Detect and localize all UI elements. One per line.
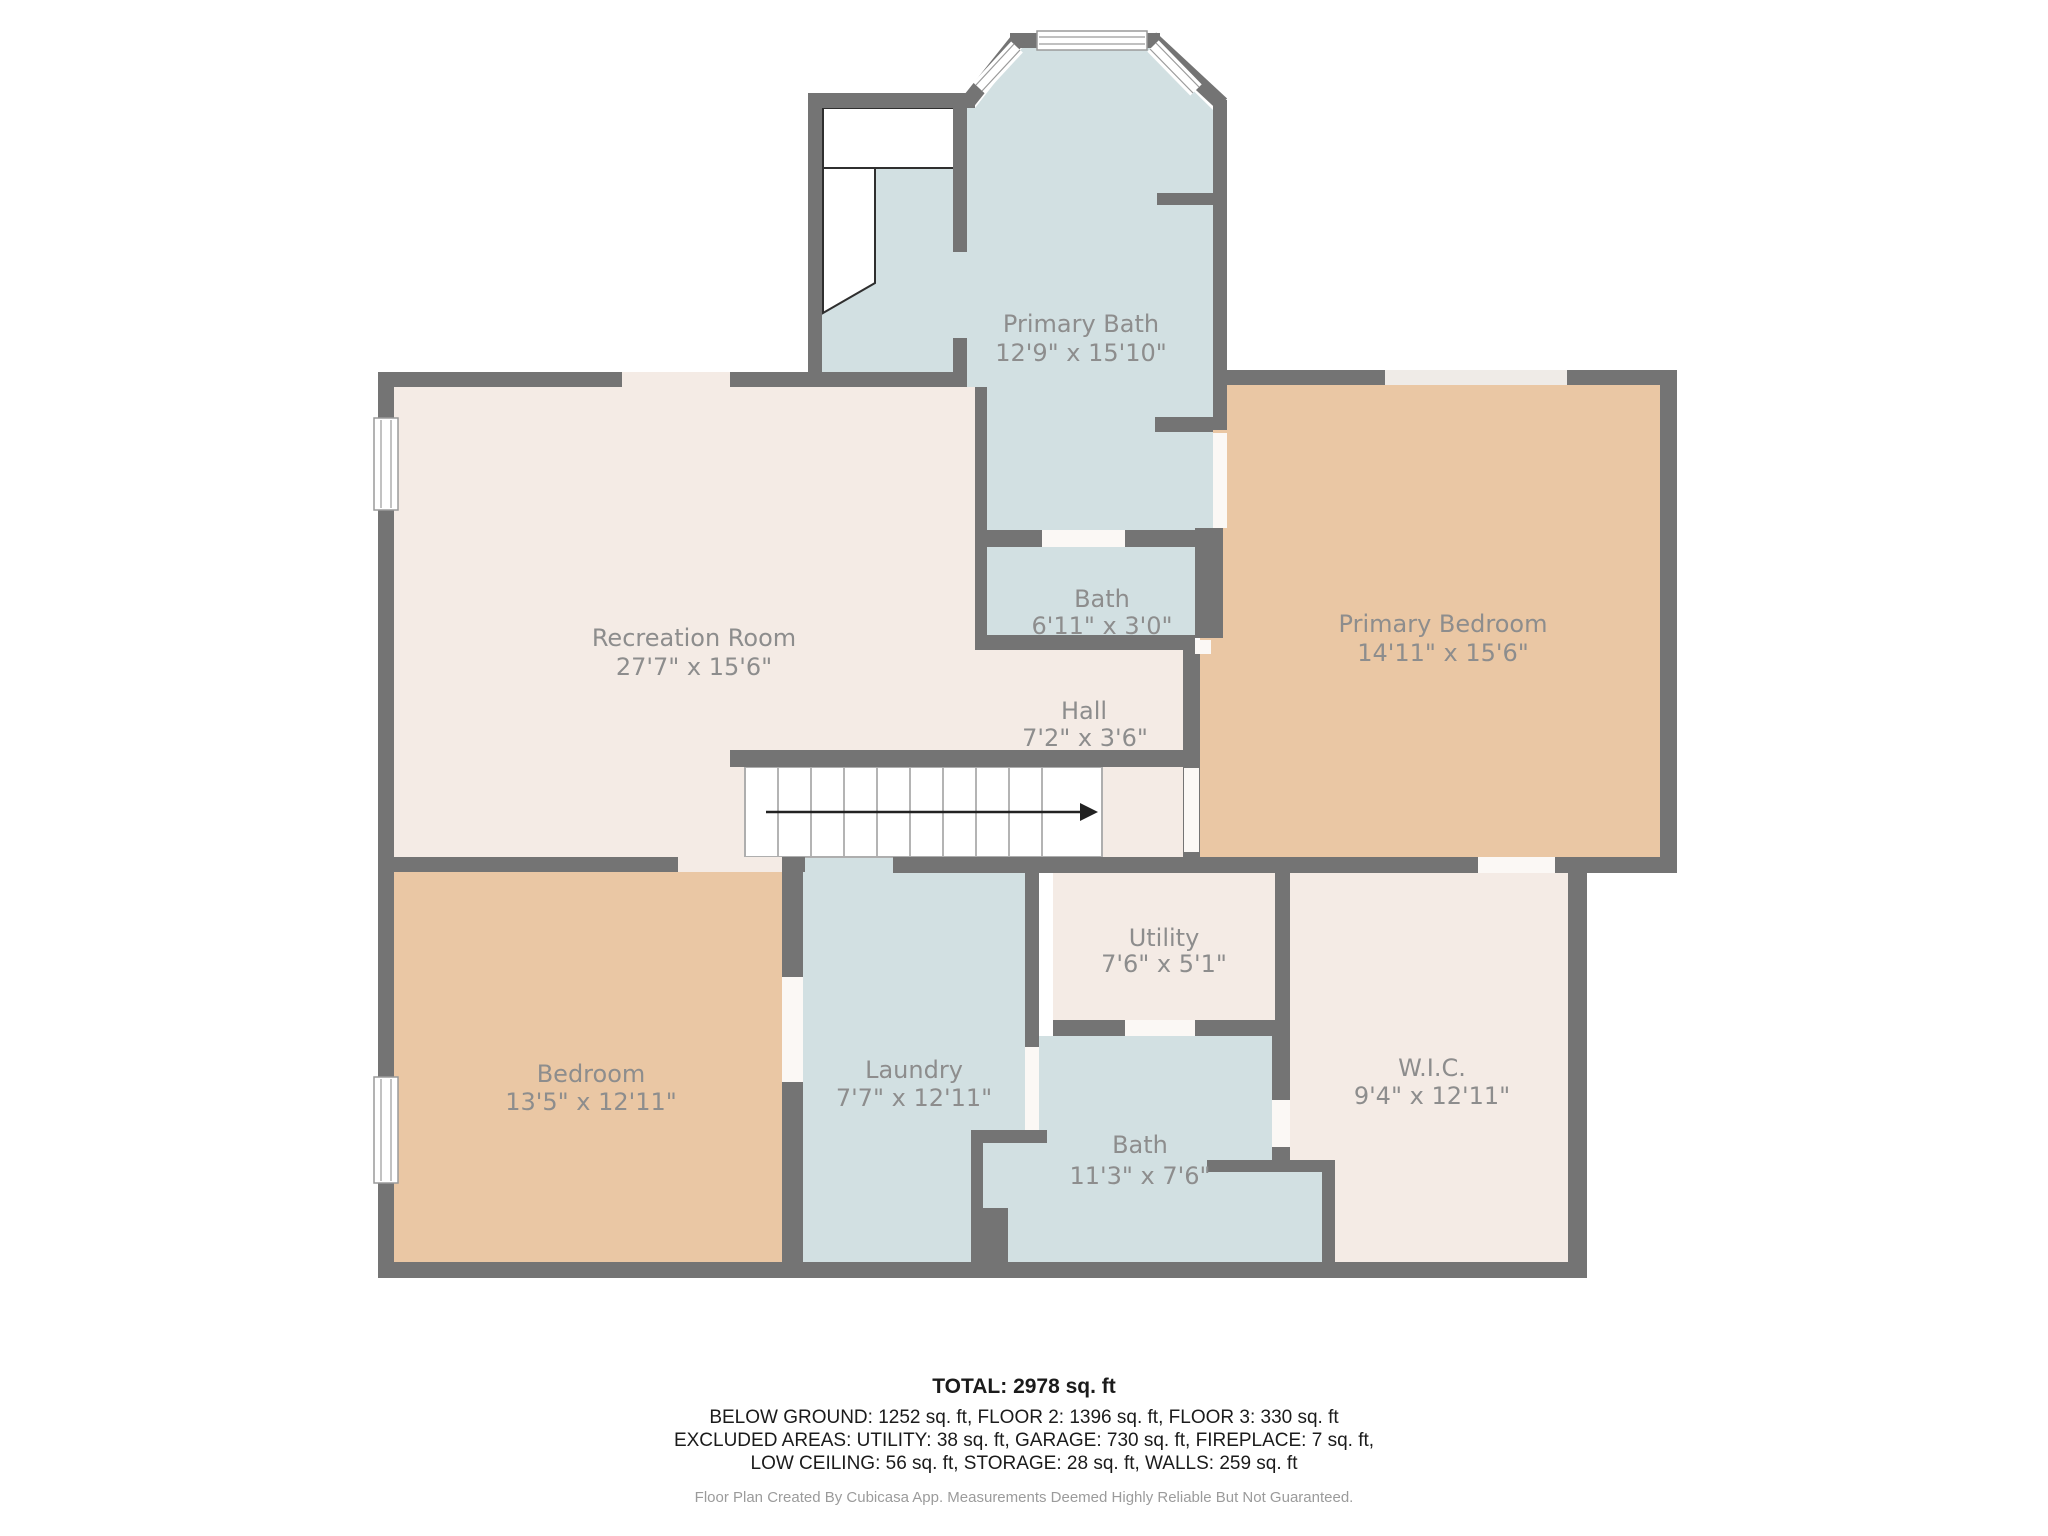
wall-segment — [1227, 370, 1385, 385]
room-dims-primary-bath: 12'9" x 15'10" — [995, 339, 1167, 367]
wall-segment — [378, 372, 622, 387]
wall-segment — [730, 372, 967, 387]
door-gap — [1478, 857, 1555, 873]
low-ceiling-box — [823, 108, 955, 168]
footer-areas-line3: LOW CEILING: 56 sq. ft, STORAGE: 28 sq. … — [751, 1453, 1299, 1474]
room-label-bedroom: Bedroom — [537, 1060, 646, 1088]
room-label-hall: Hall — [1061, 697, 1107, 725]
room-label-recreation: Recreation Room — [592, 624, 796, 652]
room-dims-bath-upper: 6'11" x 3'0" — [1031, 612, 1172, 640]
room-label-utility: Utility — [1129, 924, 1200, 952]
wall-segment — [378, 1262, 1587, 1278]
door-gap — [1213, 433, 1227, 528]
door-gap — [1272, 1100, 1290, 1147]
wall-segment — [1025, 857, 1039, 1047]
wall-segment — [808, 93, 975, 108]
room-dims-hall: 7'2" x 3'6" — [1022, 724, 1148, 752]
wall-segment — [953, 338, 967, 387]
door-gap — [1025, 1047, 1039, 1130]
wall-segment — [1322, 1160, 1335, 1262]
wall-segment — [971, 1208, 1008, 1263]
room-dims-laundry: 7'7" x 12'11" — [836, 1084, 992, 1112]
room-label-primary-bedroom: Primary Bedroom — [1339, 610, 1548, 638]
wall-segment — [981, 1130, 1047, 1143]
wall-segment — [1568, 867, 1587, 1262]
footer-credit: Floor Plan Created By Cubicasa App. Meas… — [695, 1489, 1354, 1506]
door-gap — [1195, 640, 1211, 654]
wall-segment — [1195, 528, 1223, 638]
window-bay-top — [1037, 31, 1147, 50]
room-label-bath-upper: Bath — [1074, 585, 1130, 613]
staircase — [745, 767, 1102, 857]
door-gap — [782, 977, 803, 1082]
wall-segment — [1213, 100, 1227, 430]
cased-opening — [622, 372, 730, 387]
cased-opening — [678, 857, 782, 872]
room-dims-primary-bedroom: 14'11" x 15'6" — [1357, 639, 1529, 667]
door-gap — [1184, 768, 1199, 852]
footer-total: TOTAL: 2978 sq. ft — [932, 1375, 1116, 1398]
wall-segment — [1155, 417, 1213, 432]
window-recreation-left — [374, 418, 398, 510]
room-dims-recreation: 27'7" x 15'6" — [616, 653, 772, 681]
wall-segment — [730, 750, 1183, 767]
floor-plan-page: Primary Bath 12'9" x 15'10" Bath 6'11" x… — [0, 0, 2048, 1536]
door-gap — [1125, 1020, 1195, 1036]
wall-segment — [1125, 530, 1195, 547]
room-dims-utility: 7'6" x 5'1" — [1101, 950, 1227, 978]
room-label-bath-lower: Bath — [1112, 1131, 1168, 1159]
wall-segment — [808, 93, 822, 387]
wall-segment — [1660, 370, 1677, 873]
floor-plan-drawing: Primary Bath 12'9" x 15'10" Bath 6'11" x… — [0, 0, 2048, 1536]
footer-summary: TOTAL: 2978 sq. ft BELOW GROUND: 1252 sq… — [674, 1375, 1374, 1506]
wall-segment — [953, 108, 967, 252]
footer-areas-line2: EXCLUDED AREAS: UTILITY: 38 sq. ft, GARA… — [674, 1430, 1374, 1451]
room-dims-bedroom: 13'5" x 12'11" — [505, 1088, 677, 1116]
wall-segment — [1275, 857, 1290, 1036]
room-dims-bath-lower: 11'3" x 7'6" — [1069, 1162, 1210, 1190]
door-gap — [1042, 530, 1125, 547]
window-gap-primary-bedroom — [1385, 370, 1567, 385]
room-label-laundry: Laundry — [865, 1056, 963, 1084]
room-label-wic: W.I.C. — [1398, 1054, 1466, 1082]
room-label-primary-bath: Primary Bath — [1003, 310, 1159, 338]
wall-segment — [378, 857, 678, 872]
wall-segment — [1157, 193, 1213, 205]
room-dims-wic: 9'4" x 12'11" — [1354, 1082, 1510, 1110]
window-bedroom-left — [374, 1077, 398, 1183]
wall-segment — [975, 387, 987, 650]
footer-areas-line1: BELOW GROUND: 1252 sq. ft, FLOOR 2: 1396… — [709, 1407, 1339, 1428]
wall-segment — [1207, 1160, 1333, 1172]
